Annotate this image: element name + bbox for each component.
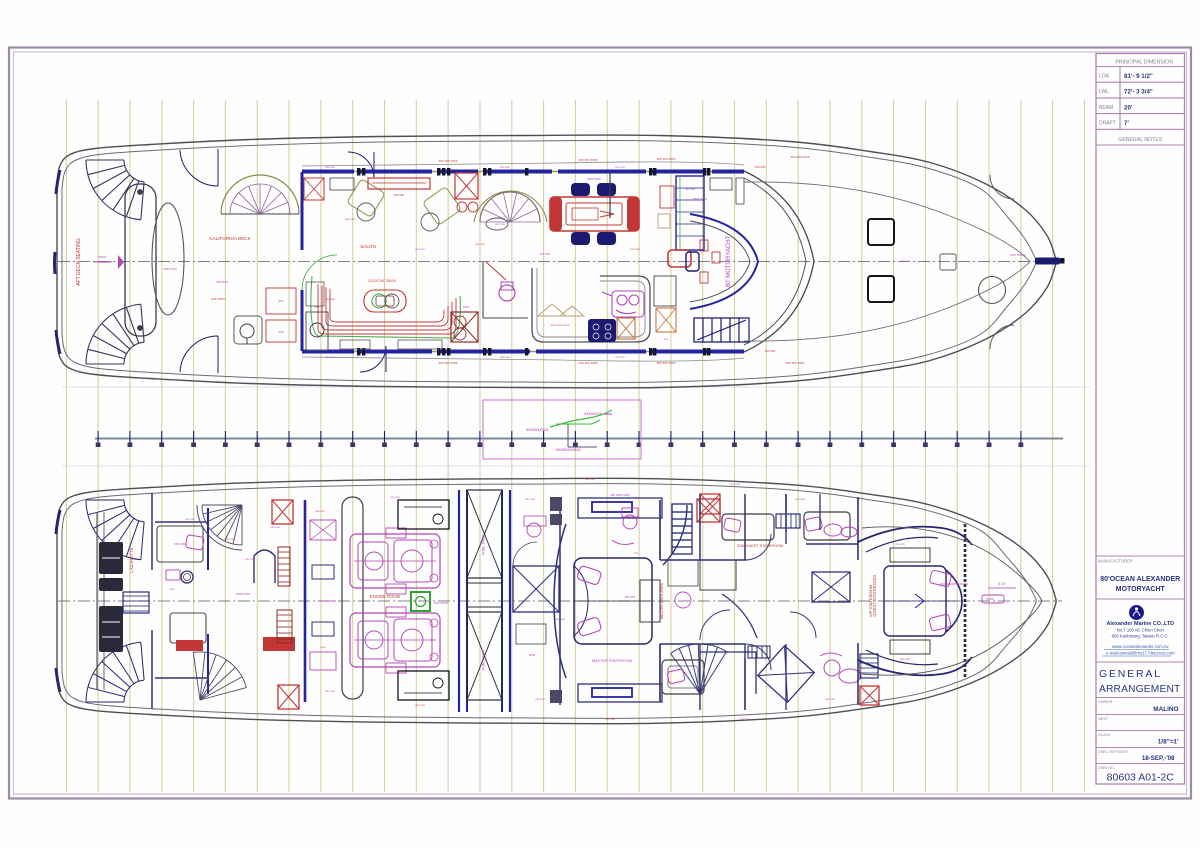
svg-text:LOA: LOA bbox=[1099, 74, 1110, 80]
svg-text:xxx xxx xxxx: xxx xxx xxxx bbox=[439, 159, 458, 163]
svg-text:xxx: xxx bbox=[279, 330, 284, 334]
svg-text:xxx xxx: xxx xxx bbox=[325, 297, 335, 301]
svg-text:4'-6": 4'-6" bbox=[998, 581, 1007, 586]
svg-text:xxx xxx: xxx xxx bbox=[895, 542, 905, 546]
svg-text:e-mail:oamail@ms17.hinet.net.c: e-mail:oamail@ms17.hinet.net.com bbox=[1106, 651, 1175, 656]
svg-text:SALON: SALON bbox=[360, 244, 376, 249]
svg-text:xxx: xxx bbox=[634, 551, 639, 555]
svg-text:xxx xxx: xxx xxx bbox=[315, 509, 325, 513]
svg-text:xxx xxx: xxx xxx bbox=[555, 617, 565, 621]
svg-text:xxx xxx: xxx xxx bbox=[685, 187, 695, 191]
svg-text:xxx xxx: xxx xxx bbox=[225, 537, 235, 541]
svg-text:xxx xxx: xxx xxx bbox=[585, 477, 595, 481]
svg-text:xxx xxx: xxx xxx bbox=[500, 355, 510, 359]
svg-text:xxx xxx: xxx xxx bbox=[394, 193, 405, 197]
svg-text:xxx xxx xxxx: xxx xxx xxxx bbox=[579, 158, 598, 162]
svg-text:NEXT: NEXT bbox=[1098, 717, 1109, 721]
svg-text:VIP STATEROOM: VIP STATEROOM bbox=[868, 585, 873, 617]
svg-text:xxx xxxx xxxx: xxx xxxx xxxx bbox=[610, 493, 630, 497]
svg-text:LAZARETTE: LAZARETTE bbox=[129, 547, 134, 572]
svg-text:xxx xxx: xxx xxx bbox=[185, 517, 195, 521]
svg-text:GENERAL NOTES: GENERAL NOTES bbox=[1118, 137, 1162, 143]
svg-text:OWNER: OWNER bbox=[1098, 700, 1113, 704]
svg-text:xxx xxx: xxx xxx bbox=[740, 717, 750, 721]
svg-text:xxxx xxxx: xxxx xxxx bbox=[693, 197, 708, 201]
svg-text:xxx xxx xxxx: xxx xxx xxxx bbox=[657, 361, 676, 365]
svg-text:MASTER BATH AREA: MASTER BATH AREA bbox=[660, 582, 664, 618]
svg-text:xxx xxx xxxx: xxx xxx xxxx bbox=[657, 157, 676, 161]
svg-text:xxx xxx: xxx xxx bbox=[540, 252, 551, 256]
svg-text:xxx: xxx bbox=[321, 645, 326, 649]
svg-text:MOTORYACHT: MOTORYACHT bbox=[1116, 586, 1166, 593]
svg-text:81'- 9 1/2": 81'- 9 1/2" bbox=[1124, 73, 1153, 80]
svg-text:xxx xxxx: xxx xxxx bbox=[434, 601, 448, 605]
svg-text:ENGINE ROOM: ENGINE ROOM bbox=[370, 594, 401, 599]
svg-text:xxxxxxxxxx: xxxxxxxxxx bbox=[526, 427, 549, 432]
svg-text:xxx xxx: xxx xxx bbox=[390, 495, 400, 499]
svg-text:xxx xxx: xxx xxx bbox=[630, 247, 640, 251]
svg-text:xxx xxx: xxx xxx bbox=[795, 497, 805, 501]
svg-text:xxx xxx xxxx: xxx xxx xxxx bbox=[786, 361, 805, 365]
svg-text:xxx xxx: xxx xxx bbox=[345, 217, 355, 221]
svg-text:xxx xxx: xxx xxx bbox=[615, 165, 625, 169]
svg-text:xxx xxxx xxxx: xxx xxxx xxxx bbox=[551, 323, 570, 327]
svg-text:xxx xxx: xxx xxx bbox=[415, 703, 425, 707]
svg-text:xxxxxxxx: xxxxxxxx bbox=[584, 411, 603, 416]
svg-text:BEAM: BEAM bbox=[1099, 105, 1113, 111]
svg-text:xxxxxxxxxxx: xxxxxxxxxxx bbox=[556, 447, 582, 452]
svg-text:xxx xxx: xxx xxx bbox=[415, 247, 425, 251]
svg-text:xxx: xxx bbox=[279, 299, 284, 303]
svg-text:80' MOTORYACHT: 80' MOTORYACHT bbox=[726, 235, 732, 287]
svg-text:GENERAL: GENERAL bbox=[1099, 668, 1162, 680]
svg-text:xxxx xxxx: xxxx xxxx bbox=[236, 592, 251, 596]
svg-text:xxx: xxx bbox=[664, 337, 669, 341]
svg-text:FUEL TANK: FUEL TANK bbox=[482, 649, 486, 670]
svg-text:SCALE: SCALE bbox=[1098, 733, 1111, 737]
svg-text:xxx xxx: xxx xxx bbox=[325, 689, 335, 693]
svg-text:Alexander Marine CO.,LTD: Alexander Marine CO.,LTD bbox=[1106, 621, 1174, 627]
svg-text:xxx xxx: xxx xxx bbox=[475, 242, 485, 246]
svg-text:xxx xxx xxxx: xxx xxx xxxx bbox=[579, 361, 598, 365]
svg-text:AFT DECK SEATING: AFT DECK SEATING bbox=[76, 238, 82, 286]
svg-text:xxx xxx: xxx xxx bbox=[325, 355, 335, 359]
svg-text:xxx xxx: xxx xxx bbox=[325, 165, 335, 169]
svg-text:ARRANGEMENT: ARRANGEMENT bbox=[1099, 684, 1180, 695]
svg-text:MANUFACTURER: MANUFACTURER bbox=[1098, 559, 1133, 564]
svg-text:xxx xxx xxxx: xxx xxx xxxx bbox=[439, 361, 458, 365]
svg-text:80'OCEAN ALEXANDER: 80'OCEAN ALEXANDER bbox=[1100, 576, 1180, 583]
svg-text:xxxx: xxxx bbox=[529, 653, 536, 657]
svg-text:1/8"=1': 1/8"=1' bbox=[1158, 739, 1179, 746]
svg-text:xxx xxx: xxx xxx bbox=[605, 717, 615, 721]
svg-text:xxx xxx: xxx xxx bbox=[245, 557, 255, 561]
svg-text:xxx xxx: xxx xxx bbox=[270, 525, 280, 529]
svg-text:DWG. REF/DATE: DWG. REF/DATE bbox=[1098, 750, 1128, 754]
svg-text:xxxx xxxx: xxxx xxxx bbox=[587, 177, 601, 181]
svg-text:7': 7' bbox=[1124, 120, 1129, 127]
svg-text:xxx xxx: xxx xxx bbox=[500, 165, 510, 169]
svg-text:xxx xxx: xxx xxx bbox=[755, 165, 766, 169]
svg-text:xxx xxx: xxx xxx bbox=[900, 259, 910, 263]
svg-text:xxx xxx: xxx xxx bbox=[765, 349, 776, 353]
svg-text:xxxx: xxxx bbox=[463, 305, 470, 309]
svg-text:xxx xxx: xxx xxx bbox=[525, 497, 535, 501]
svg-text:xxx: xxx bbox=[170, 587, 175, 591]
svg-text:20': 20' bbox=[1124, 104, 1133, 111]
svg-text:No.7-100 Ali, Chien Chen: No.7-100 Ali, Chien Chen bbox=[1117, 628, 1165, 633]
svg-text:xxx xxx xxxx: xxx xxx xxxx bbox=[791, 155, 810, 159]
svg-text:xxxx: xxxx bbox=[986, 597, 993, 601]
svg-text:xxxx: xxxx bbox=[98, 254, 106, 259]
svg-text:MALINO: MALINO bbox=[1153, 706, 1178, 713]
svg-text:xxx xxxx: xxx xxxx bbox=[174, 542, 186, 546]
svg-text:LWL: LWL bbox=[1099, 89, 1109, 95]
svg-text:806 Kaohsiung, Taiwan R.O.C.: 806 Kaohsiung, Taiwan R.O.C. bbox=[1112, 634, 1169, 639]
svg-text:xxx xxx: xxx xxx bbox=[535, 697, 545, 701]
svg-text:DRAFT: DRAFT bbox=[1099, 121, 1116, 127]
svg-text:18-SEP,-'08: 18-SEP,-'08 bbox=[1142, 755, 1175, 762]
svg-text:2ND GUEST STATEROOM: 2ND GUEST STATEROOM bbox=[737, 544, 783, 548]
svg-text:www.oceanalexander.com.tw: www.oceanalexander.com.tw bbox=[1112, 644, 1169, 649]
svg-text:xxx xxx: xxx xxx bbox=[900, 657, 910, 661]
svg-text:80603 A01-2C: 80603 A01-2C bbox=[1107, 772, 1175, 784]
svg-text:xxx xxxx: xxx xxxx bbox=[211, 297, 225, 301]
svg-text:MASTER STATEROOM: MASTER STATEROOM bbox=[592, 659, 632, 663]
svg-text:xxx xxx: xxx xxx bbox=[825, 697, 835, 701]
svg-text:DWG NO.: DWG NO. bbox=[1098, 766, 1115, 770]
svg-text:xxx xxx: xxx xxx bbox=[216, 280, 228, 284]
svg-text:xxx xxx: xxx xxx bbox=[495, 222, 505, 226]
svg-text:xxxx xxx: xxxx xxx bbox=[163, 267, 177, 271]
svg-text:FUEL TANK: FUEL TANK bbox=[482, 534, 486, 555]
svg-text:PRINCIPAL DIMENSION: PRINCIPAL DIMENSION bbox=[1115, 60, 1173, 66]
svg-text:72'- 3 3/4": 72'- 3 3/4" bbox=[1124, 89, 1153, 96]
svg-text:COCKTAIL TABLE: COCKTAIL TABLE bbox=[368, 279, 397, 283]
svg-text:xxx xxx: xxx xxx bbox=[615, 355, 625, 359]
svg-text:xxx xxx: xxx xxx bbox=[625, 595, 636, 599]
svg-text:xxx xxx: xxx xxx bbox=[730, 482, 740, 486]
svg-text:CALIFORNIA DECK: CALIFORNIA DECK bbox=[209, 236, 251, 241]
